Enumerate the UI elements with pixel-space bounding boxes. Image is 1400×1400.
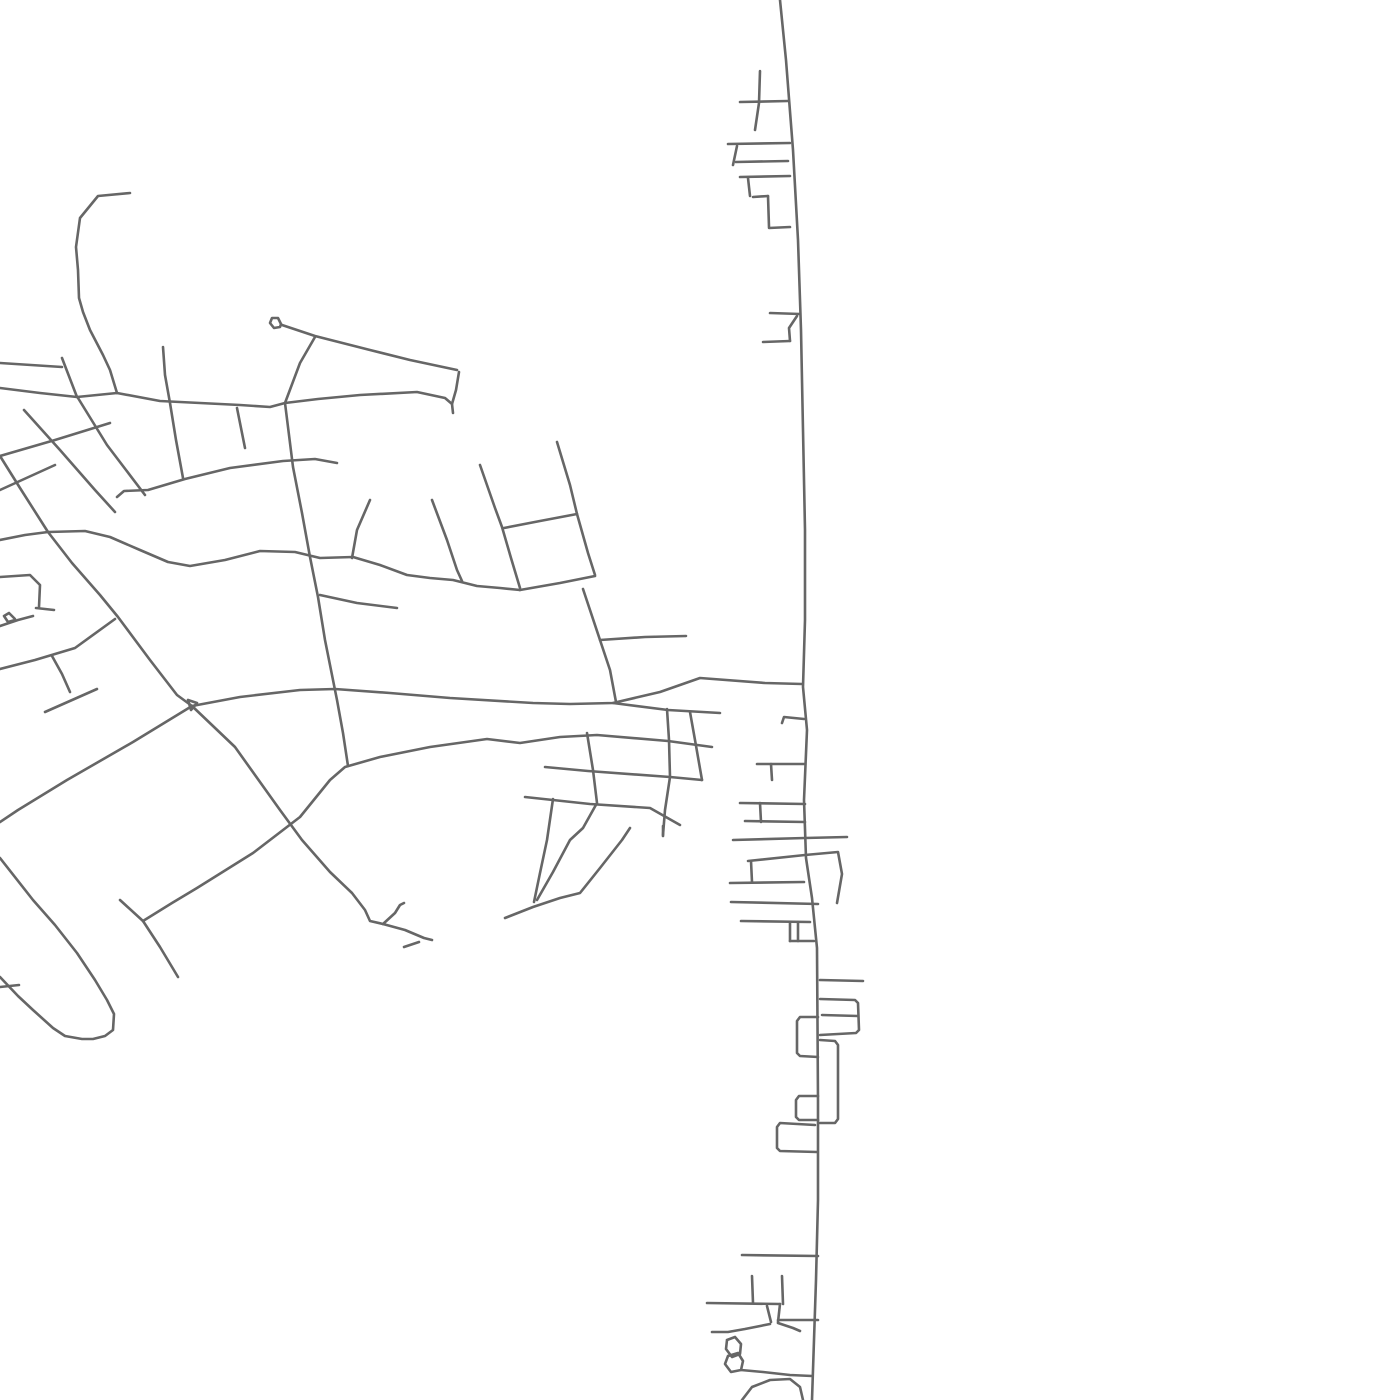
south-street-a: [742, 1255, 818, 1256]
corridor-conn-c: [760, 803, 761, 822]
corridor-street-h: [731, 902, 818, 904]
arc-connector-street: [163, 347, 183, 478]
northwest-winding-road: [76, 193, 130, 393]
east-stub-street: [820, 980, 863, 981]
north-block-street-5: [769, 227, 790, 228]
sweeping-road-spur-se: [143, 921, 178, 977]
south-street-b: [707, 1303, 780, 1304]
center-cross-street: [504, 514, 577, 528]
southwest-hairpin-road: [0, 858, 114, 1039]
center-descender-road: [583, 589, 616, 702]
wavy-road-stub: [352, 500, 370, 558]
south-curvy-west: [712, 1324, 770, 1332]
corridor-street-c: [740, 803, 805, 804]
sail-east-edge: [537, 733, 597, 900]
curl-road: [192, 706, 383, 924]
corridor-street-b-stub: [771, 764, 772, 780]
center-descender-spur: [600, 636, 686, 640]
curl-branch-right: [383, 924, 432, 940]
east-west-main-road: [0, 388, 453, 413]
nw-grid-cross-1: [0, 423, 110, 456]
south-pill-street: [741, 1370, 812, 1376]
nw-horizontal-street: [0, 363, 62, 367]
southwest-stub-street: [0, 985, 19, 987]
north-block-street-4: [753, 196, 768, 197]
parallelogram-bottom-edge: [520, 576, 595, 590]
grid-street-low: [525, 797, 680, 825]
bottom-main-road: [192, 678, 802, 706]
north-block-street-1: [728, 143, 790, 144]
southwest-diagonal-road: [0, 456, 192, 706]
curl-branch-up: [383, 903, 404, 924]
map-viewport: [0, 0, 1400, 1400]
south-stub-1: [752, 1276, 753, 1303]
ew-road-stub: [237, 408, 245, 448]
corridor-street-d: [745, 821, 805, 822]
corridor-street-i: [741, 921, 810, 922]
curl-tick: [404, 942, 419, 947]
west-parallel-stub: [52, 656, 70, 692]
sail-keel-road: [505, 828, 630, 918]
road-map-canvas: [0, 0, 1400, 1400]
west-box-1: [797, 1017, 818, 1057]
arc-road: [117, 459, 337, 497]
center-diagonal-street: [557, 442, 595, 575]
west-box-2: [796, 1096, 818, 1120]
west-parallel-street: [0, 619, 115, 669]
east-box-2: [820, 1040, 838, 1123]
wavy-road: [0, 531, 520, 590]
corridor-street-a: [782, 717, 804, 723]
mid-east-street-1: [770, 313, 800, 314]
north-south-branch: [320, 595, 397, 608]
cross-street-north-horizontal: [740, 101, 788, 102]
south-conn-1: [767, 1306, 771, 1322]
triangle-west-road: [0, 706, 192, 822]
west-gamma-foot: [36, 608, 54, 610]
north-block-conn-2: [768, 196, 769, 227]
corridor-cross-street: [733, 837, 847, 840]
flag-right-edge: [452, 372, 459, 404]
west-gamma-street: [0, 575, 40, 607]
sweeping-road: [143, 735, 712, 921]
corridor-conn-f: [751, 861, 752, 882]
south-curvy-east: [778, 1323, 800, 1331]
north-block-street-2: [736, 161, 788, 162]
south-dome-road: [742, 1379, 803, 1400]
bulb-dead-end: [270, 318, 281, 328]
corridor-street-f: [748, 852, 842, 903]
west-box-3: [777, 1123, 817, 1152]
corridor-street-g: [730, 882, 804, 883]
south-stub-2: [782, 1276, 783, 1304]
nw-vertical-street: [62, 358, 77, 397]
sweeping-road-spur-nw: [120, 900, 143, 921]
grid-street-mid: [545, 767, 702, 780]
east-box-1-mid: [822, 1015, 858, 1016]
mid-east-hook: [789, 316, 797, 341]
north-block-conn-1: [748, 178, 750, 196]
west-hook-loop: [4, 613, 15, 622]
highway-main: [780, 0, 818, 1400]
center-merge-street: [432, 500, 462, 581]
mid-east-street-2: [763, 341, 790, 342]
